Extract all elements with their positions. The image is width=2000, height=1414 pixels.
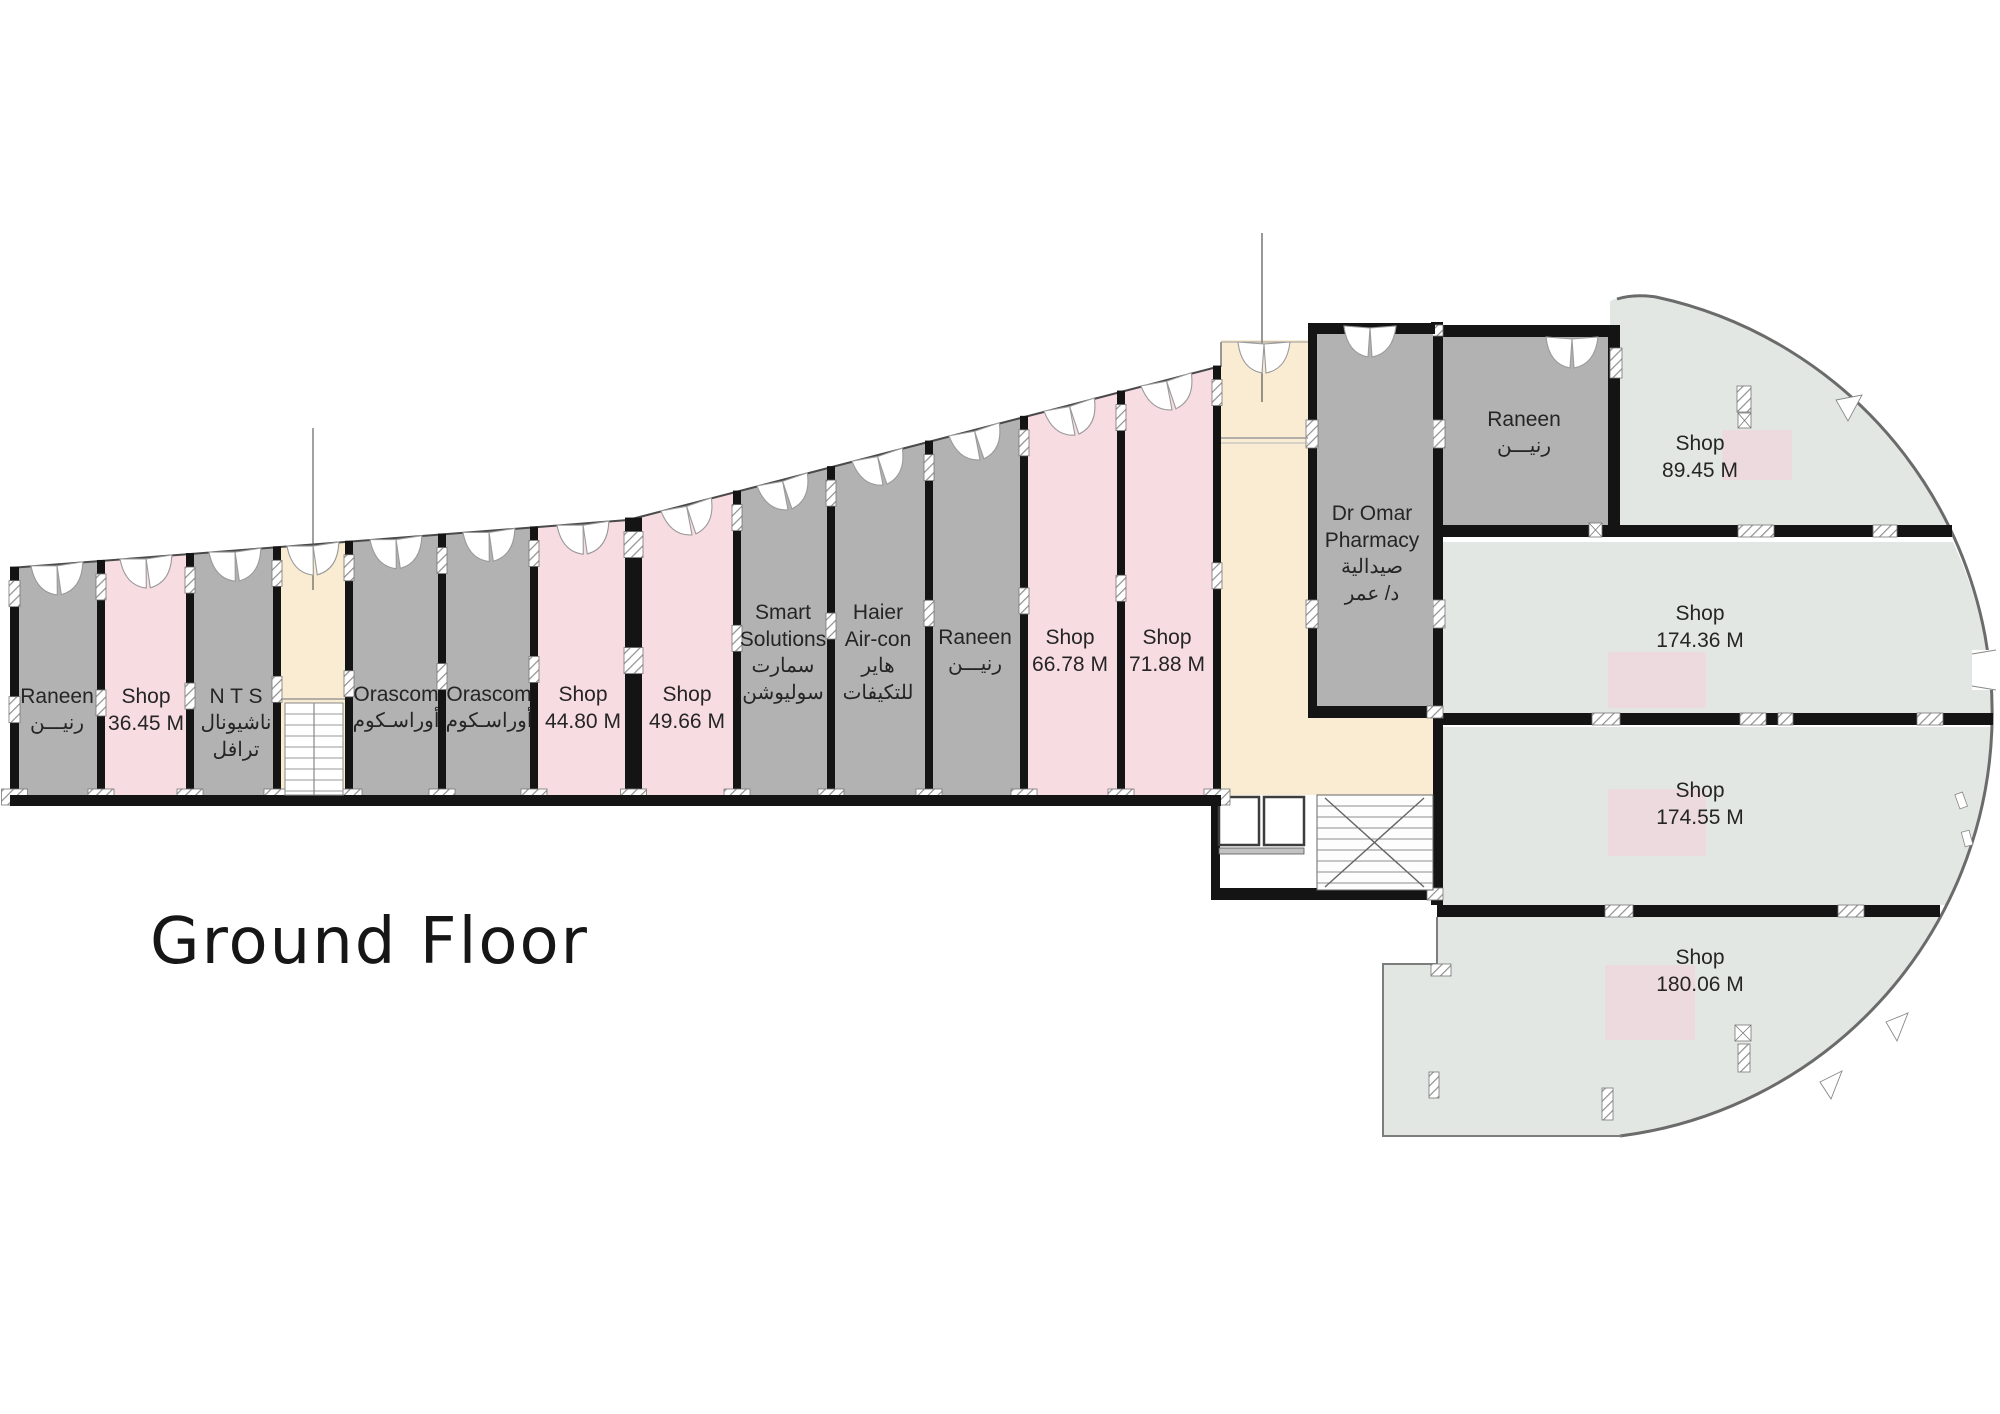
wall-hatch-marker [1917, 713, 1943, 725]
wall [10, 795, 1221, 806]
wall-hatch-marker [1306, 600, 1318, 628]
wall-hatch-marker [1306, 420, 1318, 448]
wall-hatch-marker [529, 540, 539, 566]
wall-hatch-marker [1738, 1044, 1750, 1072]
wall-hatch-marker [1778, 713, 1793, 725]
wall-hatch-marker [1212, 563, 1222, 589]
wall-hatch-marker [9, 697, 20, 723]
shop-area [1125, 368, 1213, 795]
wall-hatch-marker [344, 555, 354, 581]
shop-area [105, 554, 186, 795]
unit-label-shop-180: Shop180.06 M [1656, 944, 1744, 998]
wall-hatch-marker [1429, 1072, 1439, 1098]
elevators [1219, 797, 1304, 854]
unit-label-shop-44: Shop44.80 M [545, 681, 621, 735]
unit-label-orascom-2: Orascomأوراسـكوم [446, 681, 533, 735]
wall-hatch-marker [924, 600, 934, 626]
unit-label-shop-66: Shop66.78 M [1032, 624, 1108, 678]
floor-plan: Raneenرنيـــن Shop36.45 M N T Sناشيونالت… [0, 0, 2000, 1414]
wall-hatch-marker [1610, 348, 1622, 378]
wall-hatch-marker [1116, 405, 1126, 431]
wall-hatch-marker [1605, 905, 1633, 917]
wall-hatch-marker [1019, 430, 1029, 456]
wall-hatch-marker [185, 567, 195, 593]
unit-label-smart-solutions: SmartSolutionsسمارتسوليوشن [740, 599, 826, 707]
elevator [1264, 797, 1304, 845]
unit-label-pharmacy: Dr OmarPharmacyصيداليةد/ عمر [1325, 500, 1420, 608]
staircase-core [1317, 795, 1433, 890]
unit-label-shop-71: Shop71.88 M [1129, 624, 1205, 678]
highlight-rect [1608, 652, 1706, 708]
shop-area [353, 535, 438, 795]
shop-area [446, 528, 530, 795]
wall-hatch-marker [826, 613, 836, 639]
left-strip [2, 366, 1231, 806]
shop-area [538, 520, 625, 795]
wall-hatch-marker [732, 505, 742, 531]
wall-hatch-marker [1592, 713, 1620, 725]
wall-hatch-marker [529, 656, 539, 682]
wall-hatch-marker [1019, 588, 1029, 614]
shop-area-89 [1610, 295, 1951, 532]
unit-label-haier: HaierAir-conهايرللتكيفات [843, 599, 914, 707]
unit-label-nts: N T Sناشيونالترافل [201, 683, 272, 764]
wall-hatch-marker [1431, 964, 1451, 976]
wall-hatch-marker [96, 574, 106, 600]
wall-hatch-marker [1740, 713, 1766, 725]
wall-hatch-marker [437, 548, 447, 574]
wall-hatch-marker [1737, 386, 1751, 412]
shop-area [642, 493, 733, 795]
unit-label-shop-89: Shop89.45 M [1662, 430, 1738, 484]
unit-label-shop-174a: Shop174.36 M [1656, 600, 1744, 654]
shop-area [1028, 393, 1117, 795]
wall-hatch-marker [624, 648, 643, 674]
wall-hatch-marker [272, 560, 282, 586]
unit-label-orascom-1: Orascomأوراسـكوم [353, 681, 440, 735]
wall-hatch-marker [1433, 420, 1445, 448]
shop-area [19, 561, 97, 795]
wall-hatch-marker [272, 676, 282, 702]
wall-hatch-marker [96, 690, 106, 716]
wall-hatch-marker [1838, 905, 1864, 917]
unit-label-raneen-3: Raneenرنيـــن [1487, 406, 1561, 460]
unit-label-raneen-2: Raneenرنيـــن [938, 624, 1012, 678]
wall-hatch-marker [924, 455, 934, 481]
unit-label-shop-49: Shop49.66 M [649, 681, 725, 735]
unit-label-shop-174b: Shop174.55 M [1656, 777, 1744, 831]
wall-hatch-marker [1116, 575, 1126, 601]
floor-plan-svg [0, 0, 2000, 1414]
wall-hatch-marker [1738, 525, 1774, 537]
unit-label-shop-36: Shop36.45 M [108, 683, 184, 737]
page-title: Ground Floor [150, 905, 589, 979]
shop-area [933, 418, 1020, 795]
wall-hatch-marker [826, 480, 836, 506]
wall-hatch-marker [624, 532, 643, 558]
wall-hatch-marker [1433, 600, 1445, 628]
wall-hatch-marker [1873, 525, 1897, 537]
wall-hatch-marker [9, 581, 20, 607]
wall-hatch-marker [1427, 706, 1443, 718]
wall-hatch-marker [1212, 380, 1222, 406]
wall-hatch-marker [1602, 1088, 1613, 1120]
wall-hatch-marker [185, 683, 195, 709]
unit-label-raneen-1: Raneenرنيـــن [20, 683, 94, 737]
